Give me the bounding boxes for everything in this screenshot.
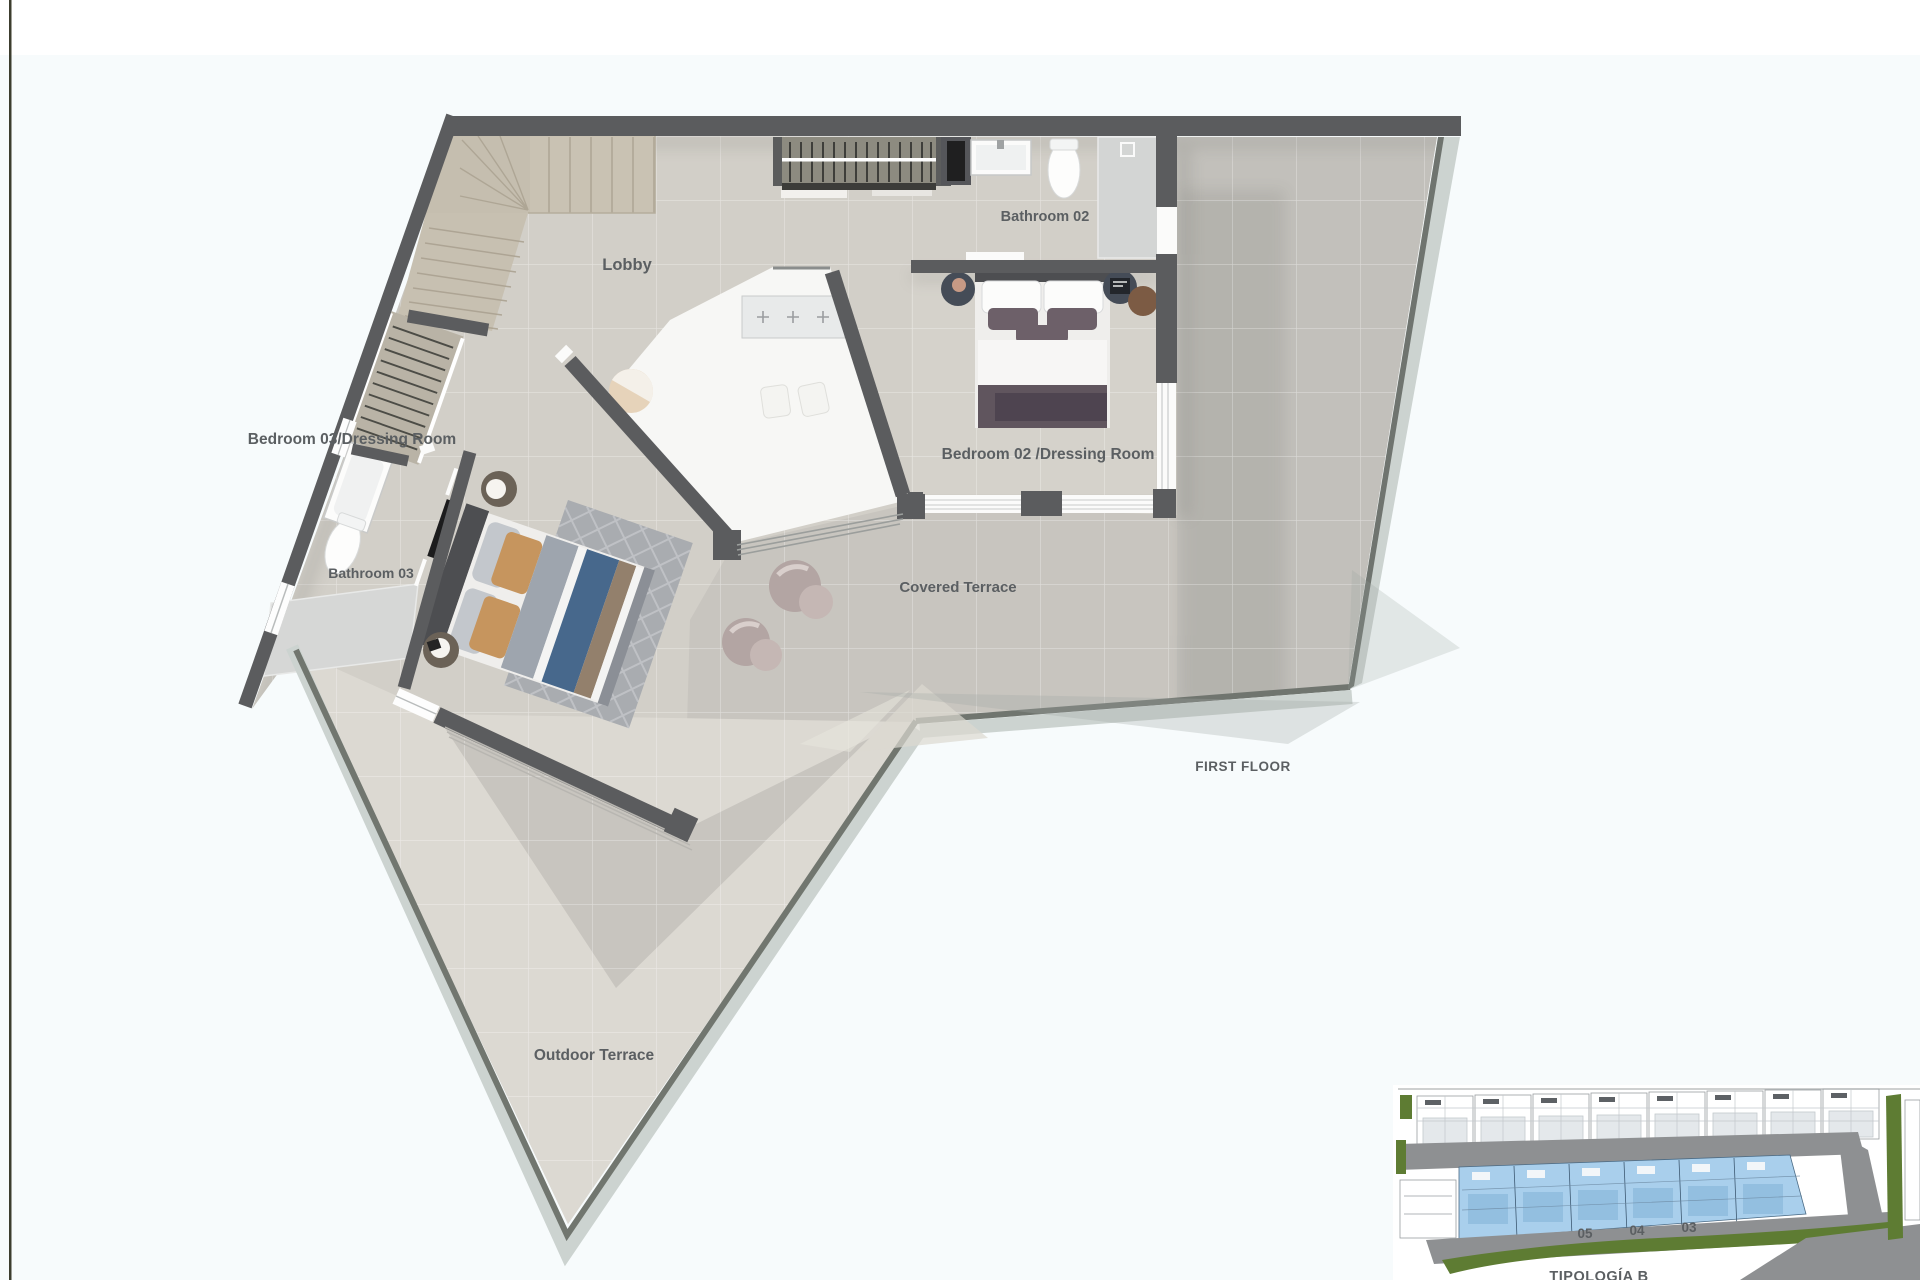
- svg-text:05: 05: [1577, 1226, 1593, 1241]
- svg-text:03: 03: [1681, 1220, 1697, 1235]
- svg-text:Bedroom 03/Dressing Room: Bedroom 03/Dressing Room: [248, 431, 456, 448]
- svg-text:Bedroom 02 /Dressing Room: Bedroom 02 /Dressing Room: [942, 446, 1155, 463]
- svg-text:Covered Terrace: Covered Terrace: [899, 579, 1016, 596]
- svg-text:TIPOLOGÍA B: TIPOLOGÍA B: [1549, 1268, 1648, 1280]
- svg-text:Bathroom 02: Bathroom 02: [1001, 209, 1090, 225]
- svg-text:04: 04: [1629, 1223, 1645, 1238]
- svg-text:FIRST FLOOR: FIRST FLOOR: [1195, 759, 1291, 774]
- svg-text:Bathroom 03: Bathroom 03: [328, 565, 414, 581]
- svg-text:Outdoor Terrace: Outdoor Terrace: [534, 1047, 655, 1064]
- svg-text:Lobby: Lobby: [602, 256, 652, 274]
